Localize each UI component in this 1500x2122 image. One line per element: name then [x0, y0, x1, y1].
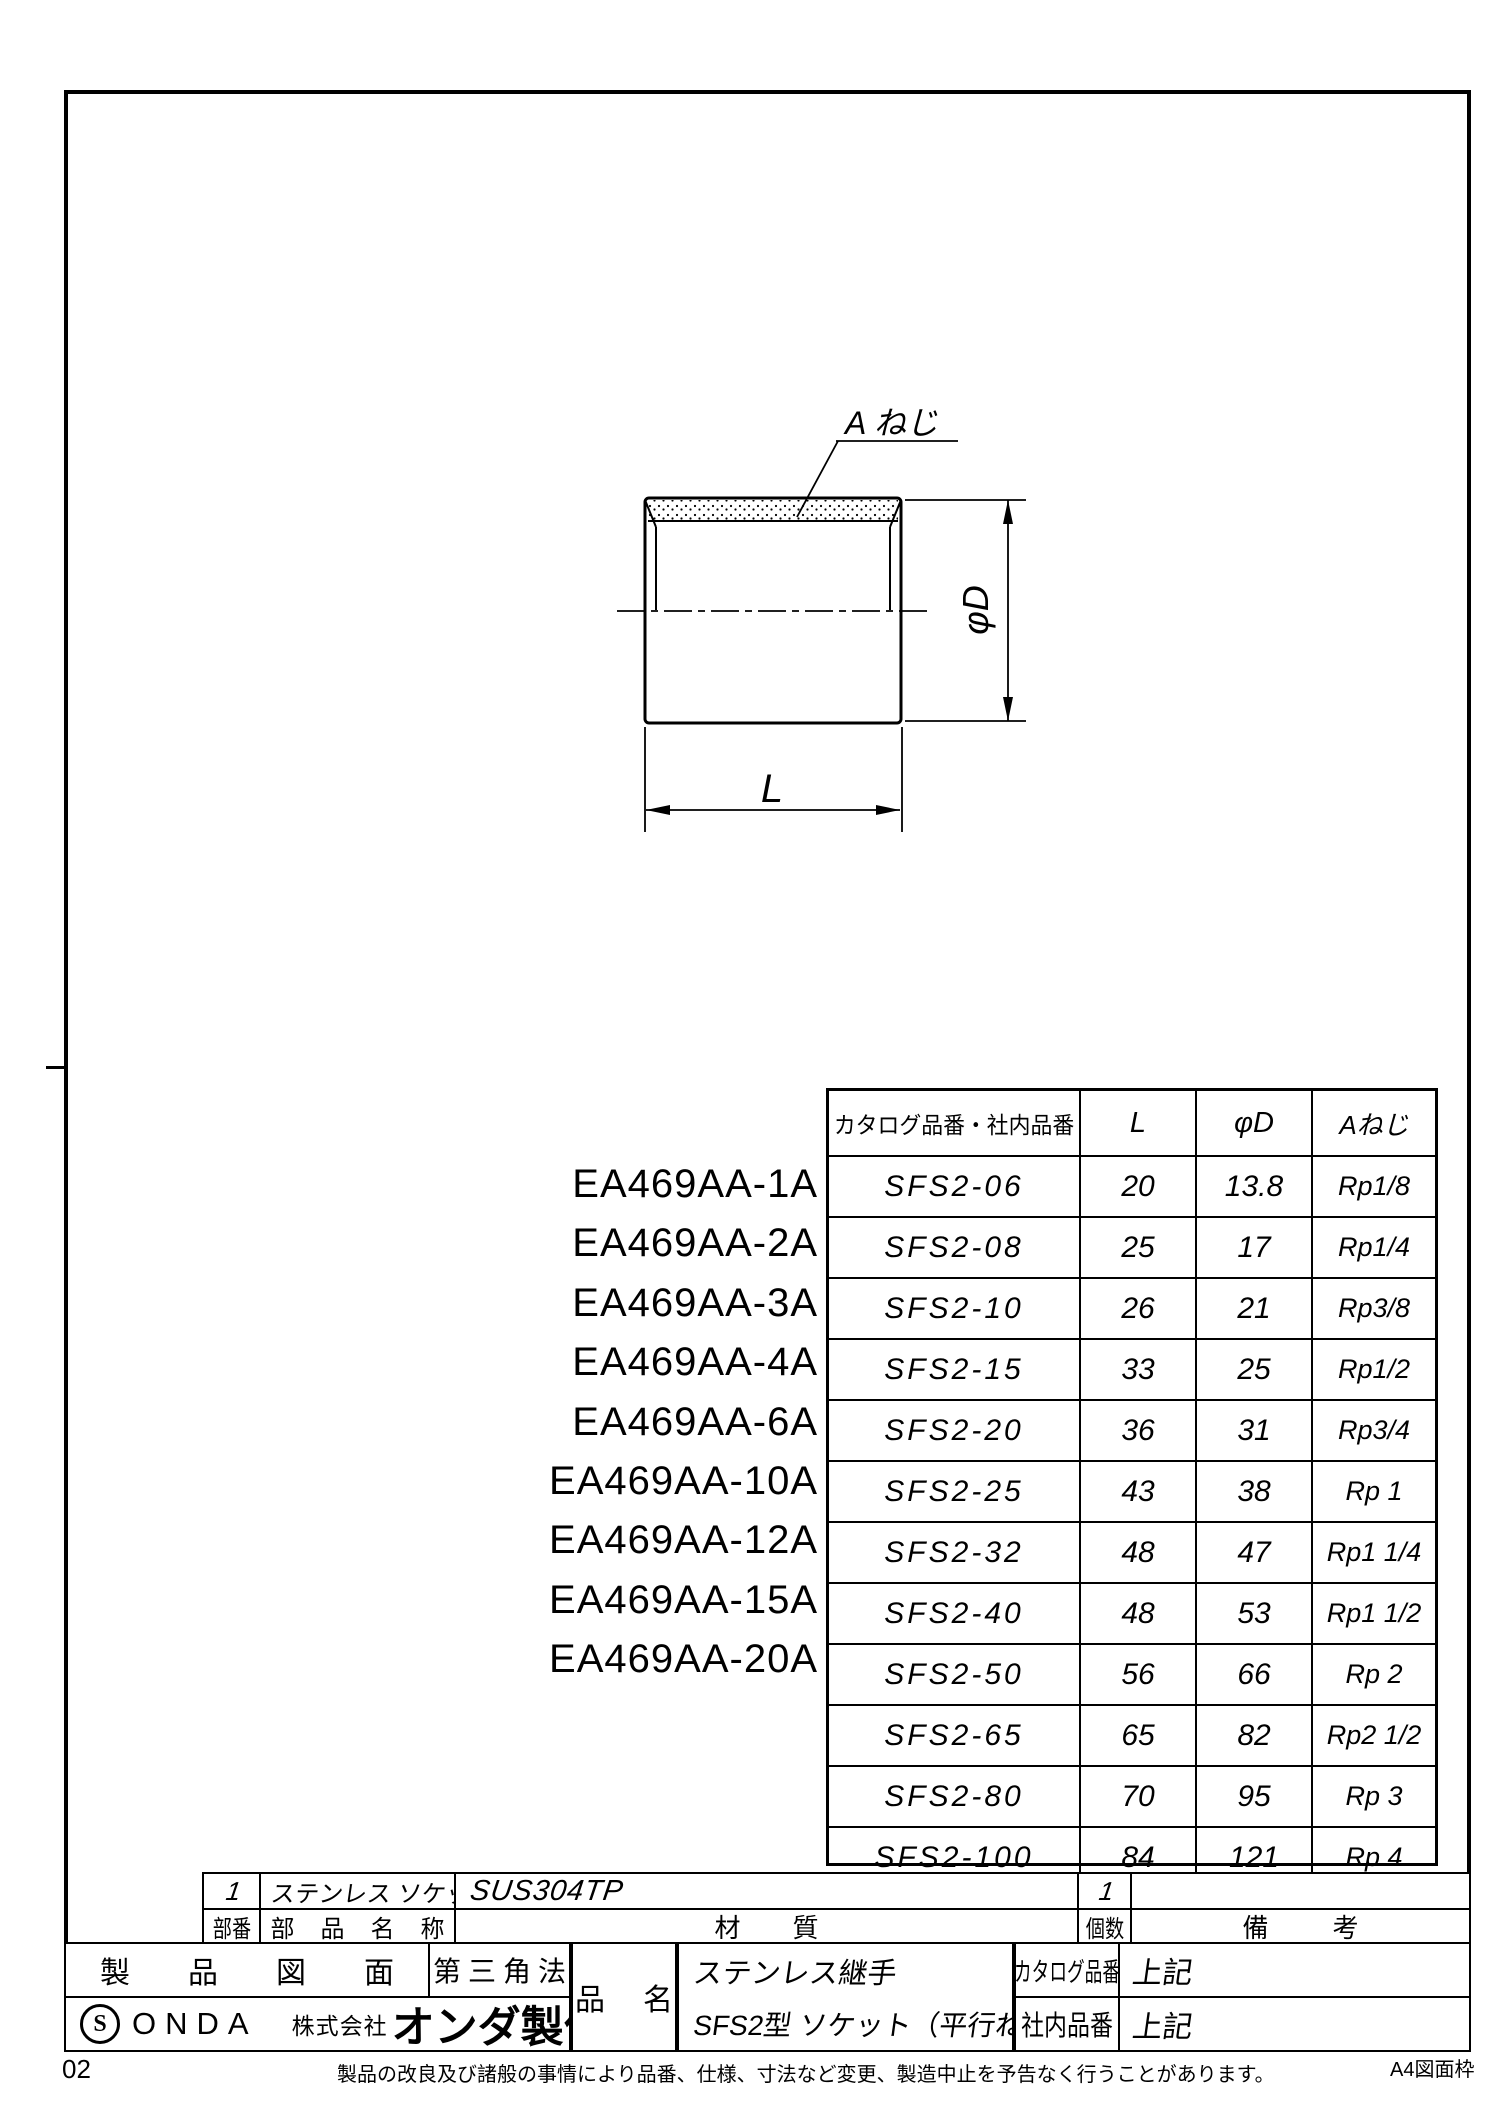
table-cell-D: 47	[1195, 1523, 1311, 1582]
parts-header-name: 部品名称	[271, 1909, 471, 1944]
onda-s-icon: S	[80, 2004, 120, 2044]
table-cell-L: 26	[1079, 1279, 1195, 1338]
table-cell-L: 56	[1079, 1645, 1195, 1704]
parts-header-number-cell: 部番	[202, 1908, 261, 1944]
table-cell-code: SFS2-32	[829, 1523, 1079, 1582]
ea-code-label: EA469AA-2A	[572, 1219, 818, 1267]
table-cell-L: 20	[1079, 1157, 1195, 1216]
table-cell-D: 53	[1195, 1584, 1311, 1643]
table-cell-thread: Rp1/2	[1311, 1340, 1435, 1399]
header-length: L	[1079, 1091, 1195, 1155]
table-cell-D: 21	[1195, 1279, 1311, 1338]
doc-type-cell: 製品図面	[64, 1942, 430, 1998]
internal-number-label-cell: 社内品番	[1014, 1996, 1120, 2052]
parts-header-name-cell: 部品名称	[259, 1908, 456, 1944]
table-cell-D: 13.8	[1195, 1157, 1311, 1216]
table-row: SFS2-153325Rp1/2	[829, 1338, 1435, 1399]
item-name-cell: ステンレス継手 SFS2型 ソケット（平行ねじ）	[677, 1942, 1014, 2052]
parts-row-number-cell: 1	[202, 1872, 261, 1910]
internal-number-label: 社内品番	[1021, 2004, 1113, 2044]
table-row: SFS2-062013.8Rp1/8	[829, 1155, 1435, 1216]
table-cell-thread: Rp 1	[1311, 1462, 1435, 1521]
header-catalog-number: カタログ品番・社内品番	[835, 1091, 1073, 1155]
table-cell-D: 95	[1195, 1767, 1311, 1826]
ea-code-label: EA469AA-4A	[572, 1338, 818, 1386]
parts-name-cell: ステンレス ソケット（平行ねじ）	[259, 1872, 456, 1910]
parts-header-material-cell: 材質	[454, 1908, 1079, 1944]
drawing-sheet: φD L A ねじ EA469AA-1AEA469AA-2AEA469AA-3A…	[0, 0, 1500, 2122]
table-cell-code: SFS2-08	[829, 1218, 1079, 1277]
table-cell-D: 31	[1195, 1401, 1311, 1460]
parts-row-number: 1	[224, 1876, 243, 1907]
ea-code-label: EA469AA-20A	[549, 1635, 818, 1683]
company-cell: S ONDA 株式会社 オンダ製作所	[64, 1996, 571, 2052]
table-cell-code: SFS2-06	[829, 1157, 1079, 1216]
table-row: SFS2-254338Rp 1	[829, 1460, 1435, 1521]
table-cell-D: 82	[1195, 1706, 1311, 1765]
doc-type-label: 製品図面	[100, 1948, 452, 1992]
ea-code-label: EA469AA-1A	[572, 1160, 818, 1208]
table-cell-thread: Rp1/8	[1311, 1157, 1435, 1216]
header-diameter: φD	[1195, 1091, 1311, 1155]
table-cell-L: 43	[1079, 1462, 1195, 1521]
table-cell-code: SFS2-25	[829, 1462, 1079, 1521]
table-cell-thread: Rp3/8	[1311, 1279, 1435, 1338]
table-row: SFS2-102621Rp3/8	[829, 1277, 1435, 1338]
disclaimer-text: 製品の改良及び諸般の事情により品番、仕様、寸法など変更、製造中止を予告なく行うこ…	[337, 2058, 1275, 2087]
table-row: SFS2-404853Rp1 1/2	[829, 1582, 1435, 1643]
table-row: SFS2-656582Rp2 1/2	[829, 1704, 1435, 1765]
table-cell-L: 48	[1079, 1584, 1195, 1643]
ea-code-label: EA469AA-15A	[549, 1576, 818, 1624]
parts-header-remarks: 備考	[1242, 1908, 1422, 1945]
parts-header-material: 材質	[714, 1908, 870, 1945]
header-thread: Aねじ	[1311, 1091, 1435, 1155]
onda-logotype: ONDA	[132, 2006, 258, 2042]
table-cell-L: 36	[1079, 1401, 1195, 1460]
table-cell-L: 48	[1079, 1523, 1195, 1582]
table-row: SFS2-505666Rp 2	[829, 1643, 1435, 1704]
table-cell-code: SFS2-80	[829, 1767, 1079, 1826]
internal-number-value-cell: 上記	[1118, 1996, 1471, 2052]
table-cell-D: 38	[1195, 1462, 1311, 1521]
parts-material: SUS304TP	[468, 1875, 626, 1908]
table-cell-thread: Rp1/4	[1311, 1218, 1435, 1277]
parts-header-remarks-cell: 備考	[1130, 1908, 1471, 1944]
company-logo: S ONDA 株式会社 オンダ製作所	[66, 1993, 650, 2055]
centering-mark	[46, 1066, 68, 1069]
table-cell-L: 65	[1079, 1706, 1195, 1765]
table-cell-thread: Rp2 1/2	[1311, 1706, 1435, 1765]
catalog-number-value: 上記	[1130, 1948, 1196, 1992]
table-cell-thread: Rp 3	[1311, 1767, 1435, 1826]
table-cell-code: SFS2-15	[829, 1340, 1079, 1399]
parts-header-number: 部番	[212, 1909, 250, 1944]
table-cell-code: SFS2-20	[829, 1401, 1079, 1460]
table-cell-D: 66	[1195, 1645, 1311, 1704]
table-row: SFS2-324847Rp1 1/4	[829, 1521, 1435, 1582]
table-cell-thread: Rp 2	[1311, 1645, 1435, 1704]
ea-code-label: EA469AA-6A	[572, 1398, 818, 1446]
parts-qty-cell: 1	[1077, 1872, 1132, 1910]
table-cell-D: 17	[1195, 1218, 1311, 1277]
spec-table-header: カタログ品番・社内品番 L φD Aねじ	[829, 1091, 1435, 1155]
table-cell-code: SFS2-50	[829, 1645, 1079, 1704]
projection-cell: 第三角法	[428, 1942, 571, 1998]
table-row: SFS2-807095Rp 3	[829, 1765, 1435, 1826]
table-cell-thread: Rp1 1/4	[1311, 1523, 1435, 1582]
parts-remarks-cell	[1130, 1872, 1471, 1910]
table-cell-D: 25	[1195, 1340, 1311, 1399]
table-cell-code: SFS2-10	[829, 1279, 1079, 1338]
item-name-line1: ステンレス継手	[691, 1950, 900, 1992]
table-cell-thread: Rp3/4	[1311, 1401, 1435, 1460]
page-number: 02	[62, 2054, 91, 2085]
table-cell-code: SFS2-65	[829, 1706, 1079, 1765]
table-cell-thread: Rp1 1/2	[1311, 1584, 1435, 1643]
projection-label: 第三角法	[433, 1950, 573, 1990]
table-row: SFS2-203631Rp3/4	[829, 1399, 1435, 1460]
parts-qty: 1	[1097, 1876, 1116, 1907]
parts-header-qty-cell: 個数	[1077, 1908, 1132, 1944]
ea-code-label: EA469AA-12A	[549, 1516, 818, 1564]
spec-table: カタログ品番・社内品番 L φD Aねじ SFS2-062013.8Rp1/8S…	[826, 1088, 1438, 1866]
parts-header-qty: 個数	[1085, 1909, 1123, 1944]
table-cell-L: 25	[1079, 1218, 1195, 1277]
table-row: SFS2-082517Rp1/4	[829, 1216, 1435, 1277]
company-prefix: 株式会社	[292, 2007, 388, 2041]
table-cell-L: 33	[1079, 1340, 1195, 1399]
catalog-number-value-cell: 上記	[1118, 1942, 1471, 1998]
ea-code-label: EA469AA-10A	[549, 1457, 818, 1505]
table-cell-code: SFS2-40	[829, 1584, 1079, 1643]
ea-code-label: EA469AA-3A	[572, 1279, 818, 1327]
internal-number-value: 上記	[1130, 2002, 1196, 2046]
catalog-number-label-cell: カタログ品番	[1014, 1942, 1120, 1998]
item-name-label-cell: 品名	[571, 1942, 677, 2052]
table-cell-L: 70	[1079, 1767, 1195, 1826]
parts-material-cell: SUS304TP	[454, 1872, 1079, 1910]
frame-size-label: A4図面枠	[1390, 2053, 1474, 2082]
catalog-number-label: カタログ品番	[1014, 1952, 1120, 1989]
